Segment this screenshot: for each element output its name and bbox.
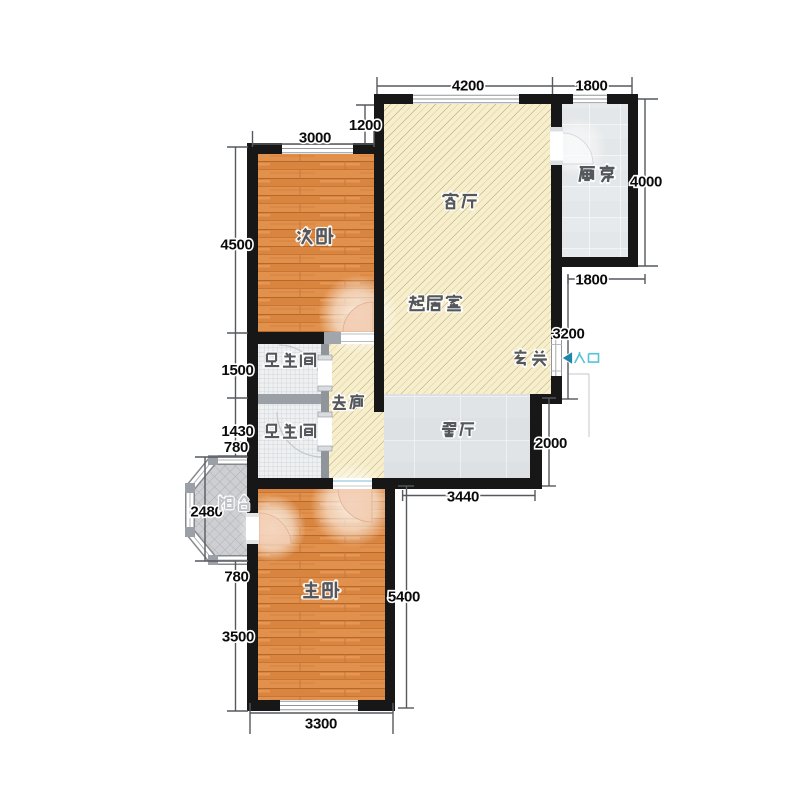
svg-text:4500: 4500 [220,236,252,253]
svg-text:1430: 1430 [221,423,253,440]
svg-text:2480: 2480 [190,503,222,520]
svg-text:4000: 4000 [630,173,662,190]
svg-text:3440: 3440 [447,488,479,505]
svg-text:3200: 3200 [552,325,584,342]
svg-text:1800: 1800 [575,77,607,94]
svg-text:5400: 5400 [388,588,420,605]
svg-text:1800: 1800 [575,271,607,288]
svg-text:1200: 1200 [349,117,381,134]
svg-text:3500: 3500 [222,628,254,645]
svg-text:780: 780 [224,439,248,456]
svg-text:2000: 2000 [535,435,567,452]
svg-text:3300: 3300 [305,715,337,732]
svg-text:1500: 1500 [221,362,253,379]
svg-text:780: 780 [224,568,248,585]
svg-text:3000: 3000 [299,129,331,146]
svg-text:4200: 4200 [452,77,484,94]
